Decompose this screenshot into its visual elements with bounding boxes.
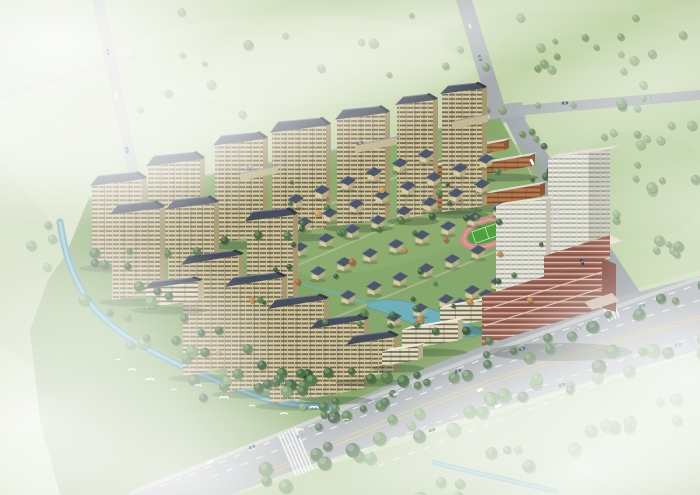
architectural-rendering [0, 0, 700, 495]
aerial-masterplan-rendering [0, 0, 700, 495]
